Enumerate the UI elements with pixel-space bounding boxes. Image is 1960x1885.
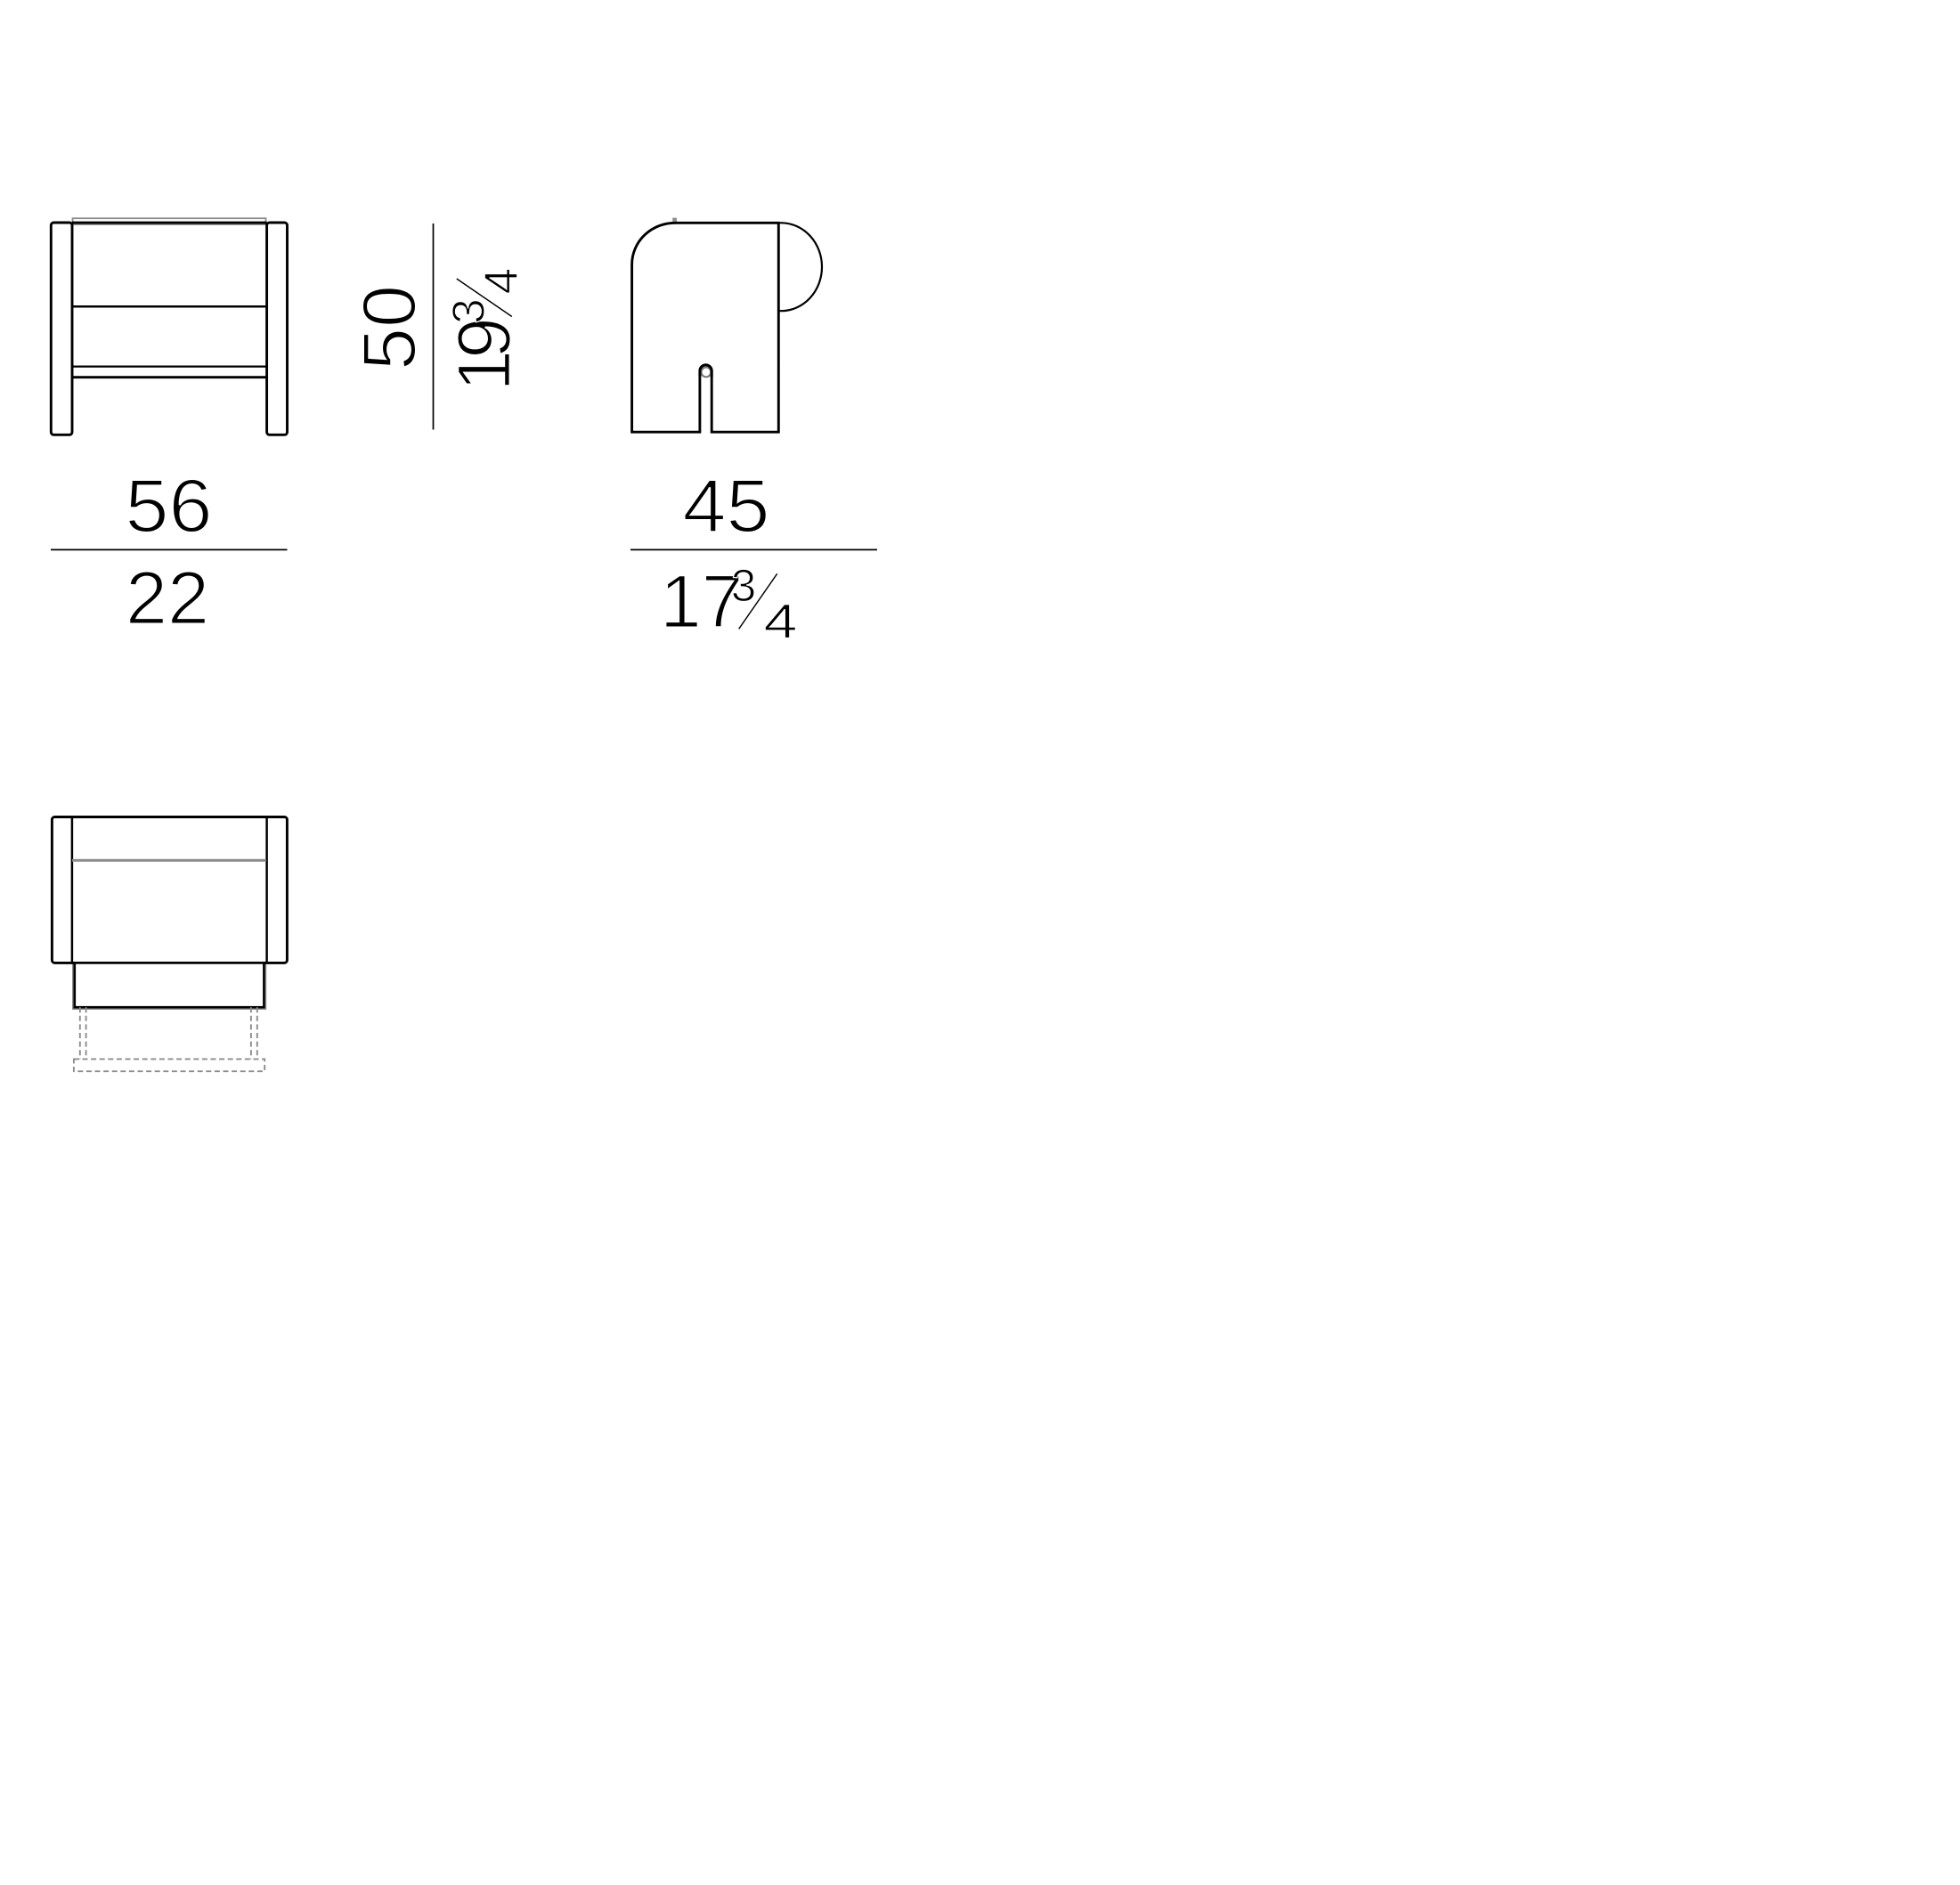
svg-text:4: 4 — [764, 594, 798, 649]
svg-text:3: 3 — [731, 560, 756, 611]
svg-text:22: 22 — [126, 557, 209, 640]
svg-text:4: 4 — [476, 268, 528, 294]
svg-text:50: 50 — [347, 285, 431, 370]
svg-text:19: 19 — [443, 321, 526, 392]
svg-text:45: 45 — [683, 464, 770, 548]
svg-text:56: 56 — [126, 464, 213, 548]
svg-text:3: 3 — [443, 298, 494, 323]
